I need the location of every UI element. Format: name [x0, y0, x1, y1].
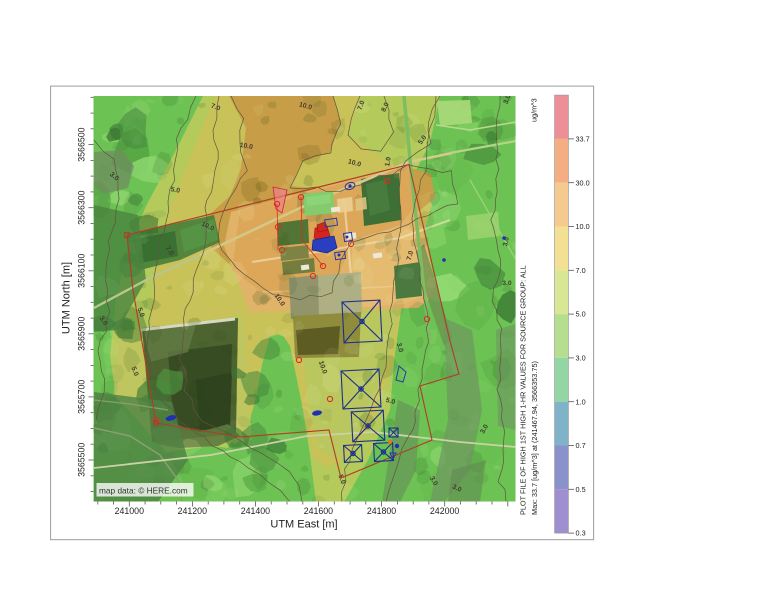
svg-text:PLOT FILE OF HIGH 1ST HIGH 1-H: PLOT FILE OF HIGH 1ST HIGH 1-HR VALUES F…	[519, 265, 528, 515]
svg-text:0.7: 0.7	[576, 441, 586, 450]
svg-text:Max: 33.7 [ug/m^3] at (241: Max: 33.7 [ug/m^3] at (241467.94, 356635…	[530, 361, 539, 515]
svg-text:0.5: 0.5	[576, 485, 586, 494]
svg-text:10.0: 10.0	[576, 222, 590, 231]
svg-text:1.0: 1.0	[576, 397, 586, 406]
svg-text:33.7: 33.7	[576, 135, 590, 144]
svg-text:3566500: 3566500	[77, 127, 87, 161]
svg-text:3566300: 3566300	[77, 190, 87, 224]
svg-text:3.0: 3.0	[576, 354, 586, 363]
svg-text:5.0: 5.0	[576, 310, 586, 319]
svg-text:3.0: 3.0	[502, 280, 512, 287]
svg-text:241000: 241000	[115, 506, 144, 516]
svg-text:241800: 241800	[367, 506, 396, 516]
svg-text:ug/m^3: ug/m^3	[530, 98, 539, 122]
svg-text:map data: © HERE.com: map data: © HERE.com	[99, 486, 188, 496]
svg-text:0.3: 0.3	[576, 529, 586, 538]
svg-text:3565500: 3565500	[77, 443, 87, 477]
svg-text:3565700: 3565700	[77, 380, 87, 414]
svg-text:3566100: 3566100	[77, 253, 87, 287]
svg-text:241400: 241400	[241, 506, 270, 516]
svg-text:241600: 241600	[304, 506, 333, 516]
svg-text:3565900: 3565900	[77, 316, 87, 350]
svg-text:7.0: 7.0	[576, 266, 586, 275]
svg-text:241200: 241200	[178, 506, 207, 516]
svg-text:UTM North [m]: UTM North [m]	[61, 262, 73, 334]
svg-text:UTM East [m]: UTM East [m]	[270, 519, 337, 531]
svg-text:242000: 242000	[430, 506, 459, 516]
svg-text:30.0: 30.0	[576, 178, 590, 187]
